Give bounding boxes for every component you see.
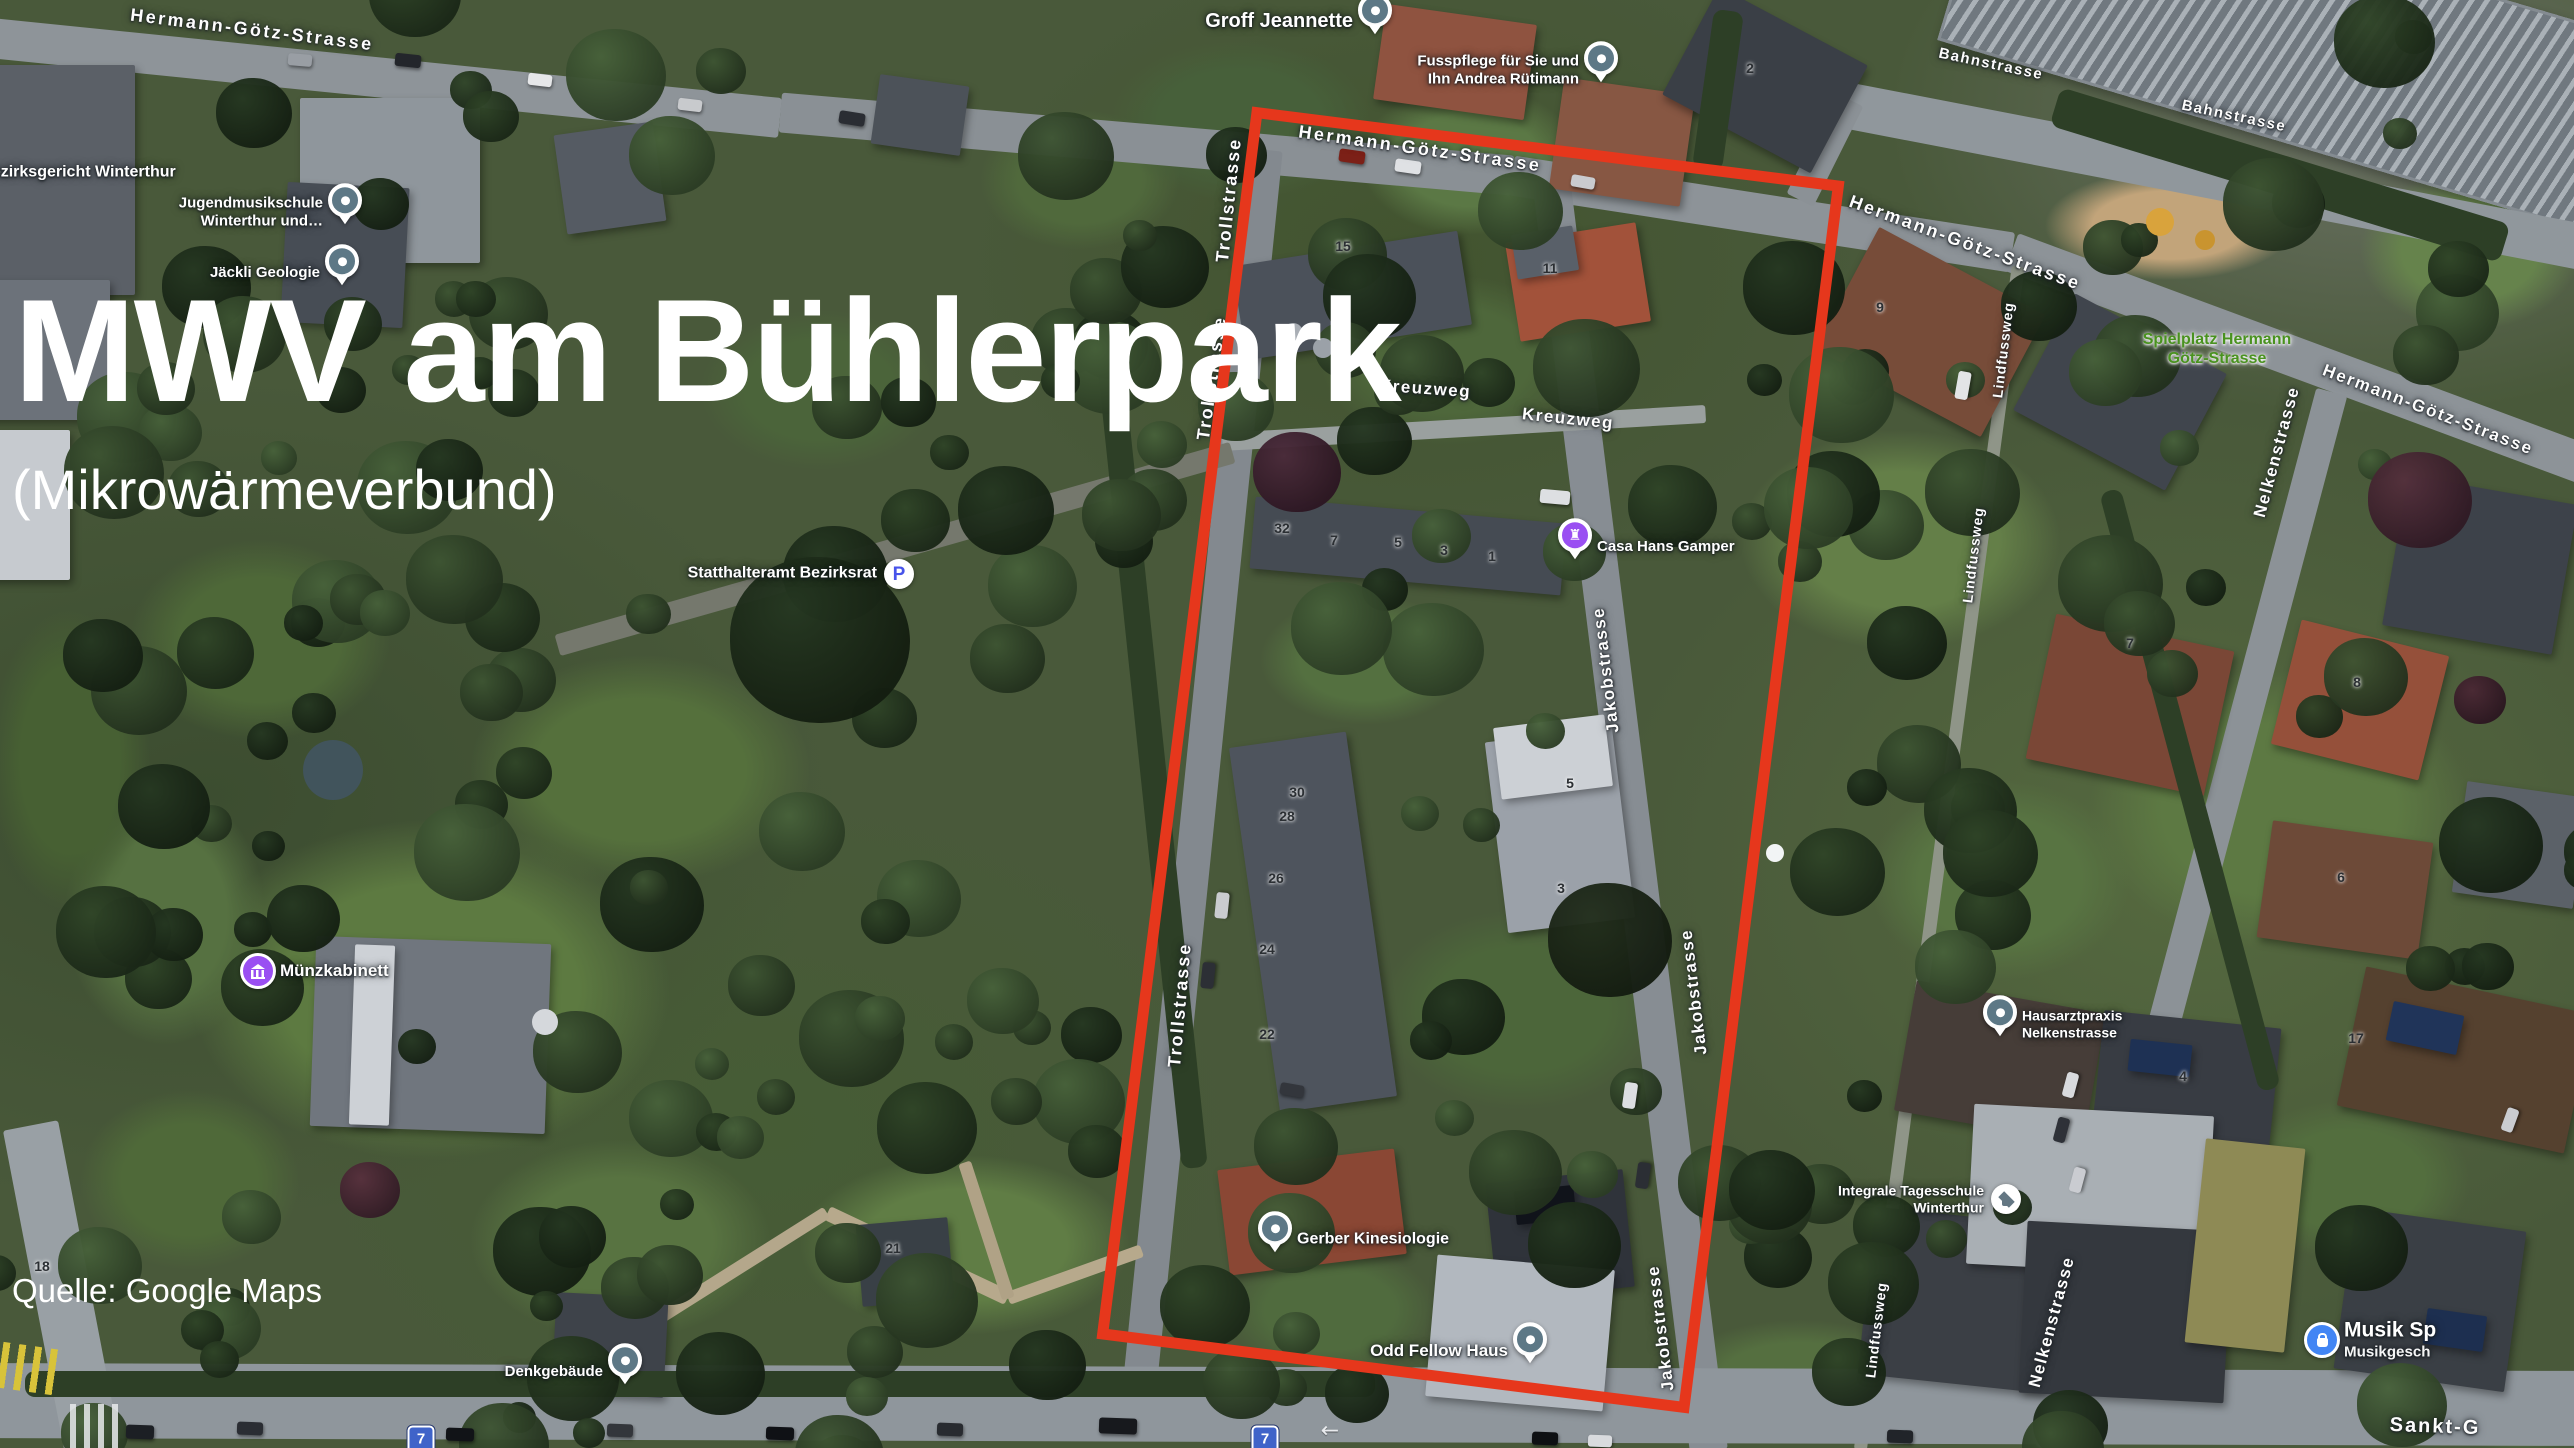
poi-label-line: Nelkenstrasse	[2022, 1024, 2122, 1041]
pin-tail	[1594, 72, 1608, 89]
house-number: 9	[1876, 299, 1884, 315]
pin-tail	[1368, 24, 1382, 41]
graduation-cap-glyph	[1998, 1191, 2014, 1207]
poi-label-line: Ihn Andrea Rütimann	[1417, 70, 1579, 88]
house-number: 7	[2126, 635, 2134, 651]
house-number: 8	[2353, 674, 2361, 690]
museum-columns-glyph	[251, 970, 265, 979]
poi-pin-icon[interactable]	[1983, 995, 2017, 1043]
street-label: Bahnstrasse	[2180, 97, 2288, 136]
poi-pin-icon[interactable]	[325, 244, 359, 292]
poi-label-line: Groff Jeannette	[1205, 10, 1353, 34]
poi-label-line: Spielplatz Hermann	[2143, 331, 2291, 350]
pin-head	[608, 1343, 642, 1377]
museum-icon[interactable]	[240, 953, 276, 989]
street-label: Lindfussweg	[1862, 1281, 1890, 1379]
pin-dot	[338, 257, 347, 266]
poi-label-line: Fusspflege für Sie und	[1417, 52, 1579, 70]
poi-label-text: Bezirksgericht Winterthur	[0, 164, 176, 183]
pin-dot	[341, 196, 350, 205]
street-label: Sankt-G	[2389, 1414, 2480, 1440]
parking-icon[interactable]: P	[884, 559, 914, 589]
pin-tail	[1993, 1026, 2007, 1043]
poi-label-text: Spielplatz HermannGötz-Strasse	[2143, 331, 2291, 369]
poi-label-text: Musik SpMusikgesch	[2344, 1319, 2436, 1362]
poi-label-text: Denkgebäude	[505, 1363, 603, 1381]
poi-label-text: Statthalteramt Bezirksrat	[688, 565, 877, 584]
poi-label-text: Groff Jeannette	[1205, 10, 1353, 34]
poi-label-line: Jäckli Geologie	[210, 264, 320, 282]
street-label: Lindfussweg	[1959, 506, 1987, 604]
pin-dot	[621, 1356, 630, 1365]
poi-pin-icon[interactable]	[1584, 41, 1618, 89]
pin-head	[1584, 41, 1618, 75]
house-number: 6	[2337, 869, 2345, 885]
street-label: Nelkenstrasse	[2250, 384, 2304, 519]
poi-label-line: Bezirksgericht Winterthur	[0, 164, 176, 183]
shopping-bag-glyph	[2317, 1338, 2328, 1347]
pin-tail	[335, 275, 349, 292]
route-shield: 7	[1252, 1426, 1279, 1448]
pin-tail	[618, 1374, 632, 1391]
house-number: 17	[2348, 1030, 2364, 1046]
house-number: 2	[1746, 60, 1754, 76]
pin-dot	[1996, 1008, 2005, 1017]
pin-tail	[338, 214, 352, 231]
parking-p-glyph: P	[893, 565, 906, 584]
poi-pin-icon[interactable]	[1358, 0, 1392, 41]
poi-label-text: HausarztpraxisNelkenstrasse	[2022, 1007, 2122, 1040]
poi-label-line: Statthalteramt Bezirksrat	[688, 565, 877, 584]
street-label: Hermann-Götz-Strasse	[2320, 360, 2536, 459]
poi-label-line: Denkgebäude	[505, 1363, 603, 1381]
poi-label-text: Münzkabinett	[280, 961, 389, 981]
pin-head	[1358, 0, 1392, 27]
pin-dot	[1597, 54, 1606, 63]
poi-label-text: Jäckli Geologie	[210, 264, 320, 282]
street-label: Nelkenstrasse	[2025, 1254, 2079, 1389]
school-icon[interactable]	[1991, 1184, 2021, 1214]
poi-label-line: Integrale Tagesschule	[1838, 1182, 1984, 1199]
poi-label-text: Integrale TagesschuleWinterthur	[1838, 1182, 1984, 1215]
poi-label-line: Winterthur und…	[179, 212, 323, 230]
shop-icon[interactable]	[2304, 1322, 2340, 1358]
poi-label-subline: Musikgesch	[2344, 1343, 2436, 1361]
route-shield: 7	[408, 1426, 435, 1448]
pin-head	[328, 183, 362, 217]
street-label: Lindfussweg	[1989, 301, 2017, 399]
poi-pin-icon[interactable]	[328, 183, 362, 231]
museum-roof-glyph	[251, 964, 265, 969]
poi-label-text: Fusspflege für Sie undIhn Andrea Rütiman…	[1417, 52, 1579, 87]
poi-pin-icon[interactable]	[608, 1343, 642, 1391]
house-number: 4	[2179, 1068, 2187, 1084]
poi-label-line: Jugendmusikschule	[179, 194, 323, 212]
street-label: Hermann-Götz-Strasse	[129, 5, 375, 56]
poi-label-text: JugendmusikschuleWinterthur und…	[179, 194, 323, 229]
pin-head	[1983, 995, 2017, 1029]
poi-label-line: Winterthur	[1838, 1199, 1984, 1216]
poi-label-line: Götz-Strasse	[2143, 350, 2291, 369]
slide-canvas: ← Hermann-Götz-StrasseHermann-Götz-Stras…	[0, 0, 2574, 1448]
poi-label-line: Hausarztpraxis	[2022, 1007, 2122, 1024]
street-label: Bahnstrasse	[1937, 45, 2045, 84]
poi-label-line: Münzkabinett	[280, 961, 389, 981]
poi-label-line: Musik Sp	[2344, 1319, 2436, 1344]
pin-dot	[1371, 6, 1380, 15]
house-number: 21	[885, 1240, 901, 1256]
street-label: Hermann-Götz-Strasse	[1846, 191, 2083, 295]
house-number: 18	[34, 1258, 50, 1274]
pin-head	[325, 244, 359, 278]
